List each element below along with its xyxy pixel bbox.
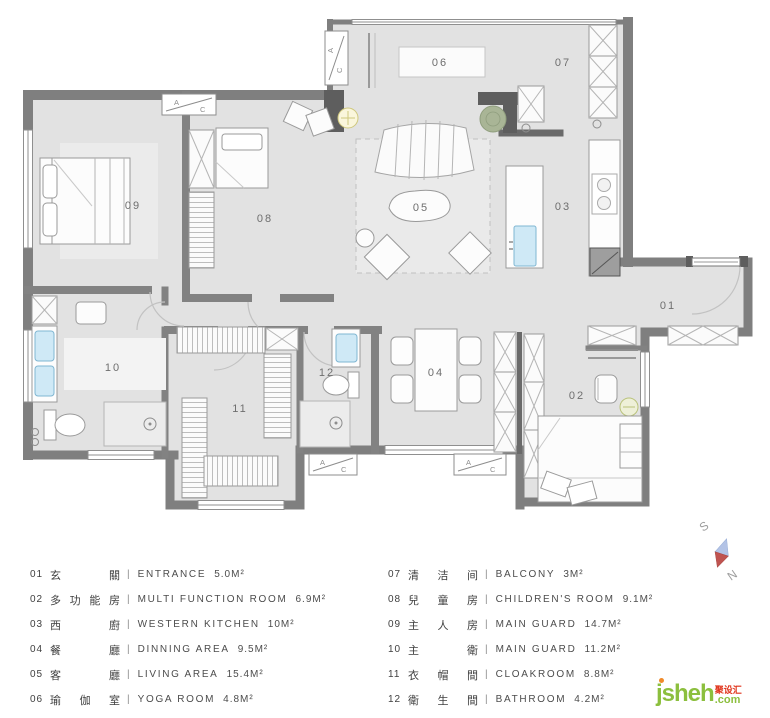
ac-unit-bottom-left: A C: [309, 454, 357, 475]
legend-item-09: 09主人房|MAIN GUARD14.7M²: [388, 612, 653, 637]
room-label-12: 12: [319, 367, 335, 379]
room-label-02: 02: [569, 390, 585, 402]
room-label-09: 09: [125, 200, 141, 212]
kitchen-counter: [589, 140, 620, 276]
legend-item-04: 04餐廳|DINNING AREA9.5M²: [30, 637, 326, 662]
ac-unit-top-left: A C: [162, 94, 216, 115]
room-label-06: 06: [432, 57, 448, 69]
legend-item-12: 12衛生間|BATHROOM4.2M²: [388, 687, 653, 712]
ac-label-a: A: [466, 458, 471, 467]
legend-item-05: 05客廳|LIVING AREA15.4M²: [30, 662, 326, 687]
ceiling-light-hall: [338, 108, 358, 128]
legend-item-03: 03西廚|WESTERN KITCHEN10M²: [30, 612, 326, 637]
compass-south-label: S: [697, 518, 712, 535]
room-label-04: 04: [428, 367, 444, 379]
legend-item-11: 11衣帽間|CLOAKROOM8.8M²: [388, 662, 653, 687]
room-label-05: 05: [413, 202, 429, 214]
bedroom-wardrobe: [189, 130, 214, 268]
legend-item-10: 10主衛|MAIN GUARD11.2M²: [388, 637, 653, 662]
legend-left-column: 01玄關|ENTRANCE5.0M² 02多功能房|MULTI FUNCTION…: [30, 562, 326, 712]
legend-item-08: 08兒童房|CHILDREN'S ROOM9.1M²: [388, 587, 653, 612]
logo-main-text: jsheh: [656, 682, 714, 706]
legend-item-06: 06瑜伽室|YOGA ROOM4.8M²: [30, 687, 326, 712]
ac-label-a: A: [320, 458, 325, 467]
living-room-furniture: [356, 120, 491, 280]
compass-north-label: N: [725, 566, 741, 583]
compass-needle: [711, 537, 734, 570]
ac-label-c: C: [490, 465, 496, 474]
room-label-03: 03: [555, 201, 571, 213]
compass: S N: [697, 518, 741, 584]
kitchen-island: [506, 166, 543, 268]
logo-com-text: .com: [715, 695, 742, 706]
room-label-01: 01: [660, 300, 676, 312]
ac-unit-bottom-right: A C: [454, 454, 506, 475]
floorplan-page: { "floorplan": { "room_numbers": ["01","…: [0, 0, 770, 718]
ac-label-c: C: [341, 465, 347, 474]
entry-door-leaf: [692, 258, 740, 266]
room-label-11: 11: [232, 403, 247, 415]
ac-label-a: A: [174, 98, 179, 107]
jsheh-logo: jsheh 聚设汇 .com: [656, 682, 742, 706]
ac-label-a: A: [326, 48, 335, 53]
logo-dot: [659, 678, 664, 683]
ac-label-c: C: [200, 105, 206, 114]
legend-item-01: 01玄關|ENTRANCE5.0M²: [30, 562, 326, 587]
legend-right-column: 07清洁间|BALCONY3M² 08兒童房|CHILDREN'S ROOM9.…: [388, 562, 653, 712]
legend-item-02: 02多功能房|MULTI FUNCTION ROOM6.9M²: [30, 587, 326, 612]
room-label-10: 10: [105, 362, 121, 374]
ac-label-c: C: [335, 67, 344, 73]
legend-item-07: 07清洁间|BALCONY3M²: [388, 562, 653, 587]
ac-unit-yoga: A C: [325, 31, 348, 85]
room-label-07: 07: [555, 57, 571, 69]
room-label-08: 08: [257, 213, 273, 225]
